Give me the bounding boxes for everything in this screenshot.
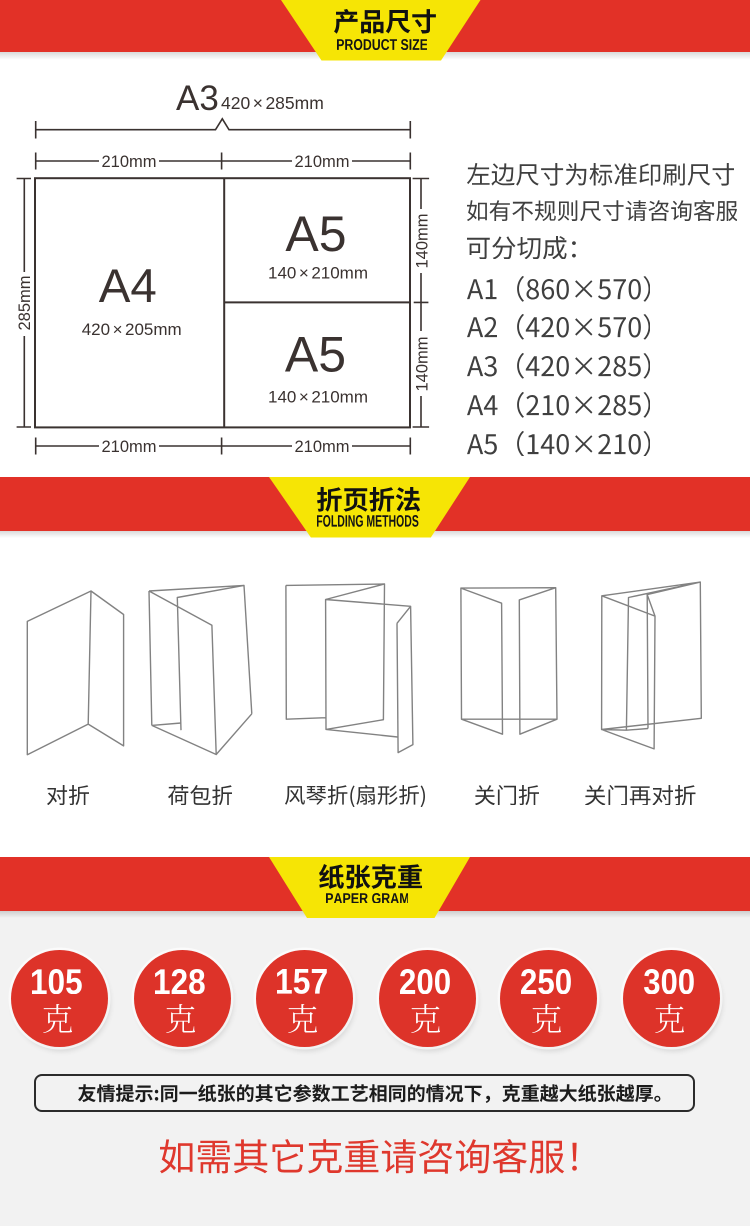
svg-text:140×210mm: 140×210mm	[268, 388, 368, 407]
svg-text:A5: A5	[285, 206, 346, 262]
svg-text:210mm: 210mm	[294, 438, 349, 456]
svg-text:210mm: 210mm	[101, 438, 156, 456]
svg-text:210mm: 210mm	[294, 153, 349, 171]
svg-text:285mm: 285mm	[16, 275, 34, 330]
svg-text:140mm: 140mm	[414, 213, 432, 268]
svg-text:140mm: 140mm	[414, 336, 432, 391]
svg-text:420×285mm: 420×285mm	[221, 93, 324, 113]
svg-text:210mm: 210mm	[101, 153, 156, 171]
svg-text:A4: A4	[99, 260, 157, 313]
svg-text:A3: A3	[176, 79, 219, 118]
svg-text:A5: A5	[285, 326, 346, 382]
svg-text:420×205mm: 420×205mm	[82, 320, 182, 339]
svg-text:140×210mm: 140×210mm	[268, 264, 368, 283]
